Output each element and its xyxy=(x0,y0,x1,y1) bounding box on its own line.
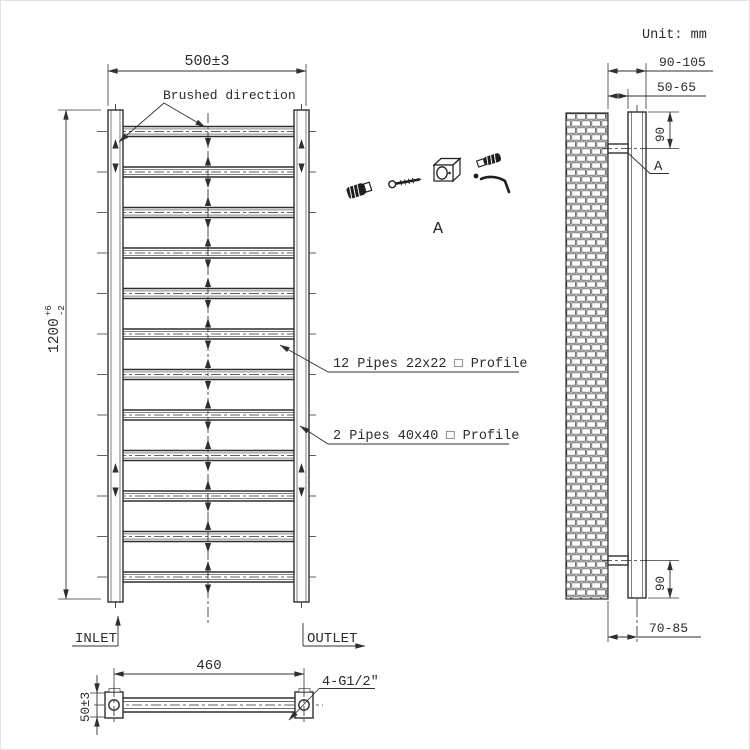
dim-50-65: 50-65 xyxy=(608,80,706,109)
dim-460: 460 xyxy=(114,658,304,690)
dim-height-1200: 1200 +6 -2 xyxy=(44,110,101,599)
brushed-direction-label: Brushed direction xyxy=(163,88,296,103)
detail-ref-text: A xyxy=(654,159,663,175)
length-dim-text: 460 xyxy=(196,658,221,674)
brushed-direction-arrows xyxy=(112,138,304,594)
technical-drawing-towel-radiator: 500±3 1200 +6 -2 Brushed direction 12 Pi… xyxy=(0,0,750,750)
wall-section xyxy=(566,113,608,599)
dim-70-85: 70-85 xyxy=(608,601,701,642)
dim-90-top: 90 xyxy=(648,112,679,149)
thread-label: 4-G1/2″ xyxy=(322,675,379,690)
height-dim-tol-minus: -2 xyxy=(57,305,67,316)
pipes-large-callout: 2 Pipes 40x40 □ Profile xyxy=(300,426,519,444)
center-depth-dim-text: 70-85 xyxy=(649,621,688,636)
pipes-large-label: 2 Pipes 40x40 □ Profile xyxy=(333,429,519,444)
height-dim-text: 1200 xyxy=(47,318,63,353)
depth-total-dim-text: 90-105 xyxy=(659,55,706,70)
outlet-label: OUTLET xyxy=(307,631,357,647)
height-dim-tol-plus: +6 xyxy=(44,305,54,316)
bottom-height-dim-text: 50±3 xyxy=(79,692,93,722)
wall-anchor-icon xyxy=(476,152,502,168)
side-rail xyxy=(628,105,646,607)
inlet-label: INLET xyxy=(75,631,117,647)
grub-screw-icon xyxy=(346,181,373,200)
pipes-small-callout: 12 Pipes 22x22 □ Profile xyxy=(280,345,527,372)
left-rail xyxy=(108,104,123,609)
allen-key-icon xyxy=(481,177,509,192)
width-dim-text: 500±3 xyxy=(184,53,229,70)
detail-label: A xyxy=(433,220,444,239)
unit-label: Unit: mm xyxy=(642,28,707,43)
left-connector xyxy=(105,687,123,722)
drawing-canvas: 500±3 1200 +6 -2 Brushed direction 12 Pi… xyxy=(1,1,750,750)
bracket-top-dim-text: 90 xyxy=(654,127,668,142)
detail-a: A xyxy=(346,152,509,239)
screw-icon xyxy=(388,176,422,188)
bottom-view: 460 50±3 4-G1/2″ xyxy=(79,658,379,735)
side-view: 90-105 50-65 90 90 xyxy=(566,55,713,642)
pipes-small-label: 12 Pipes 22x22 □ Profile xyxy=(333,357,527,372)
inlet-callout: INLET xyxy=(72,616,118,647)
front-view: 500±3 1200 +6 -2 Brushed direction 12 Pi… xyxy=(44,53,527,647)
ball-icon xyxy=(474,174,479,179)
bracket-block-icon xyxy=(434,159,460,182)
dim-90-bottom: 90 xyxy=(648,561,679,599)
wall-gap-dim-text: 50-65 xyxy=(657,80,696,95)
outlet-callout: OUTLET xyxy=(303,623,365,647)
bracket-bottom-dim-text: 90 xyxy=(654,576,668,591)
right-rail xyxy=(294,104,309,609)
